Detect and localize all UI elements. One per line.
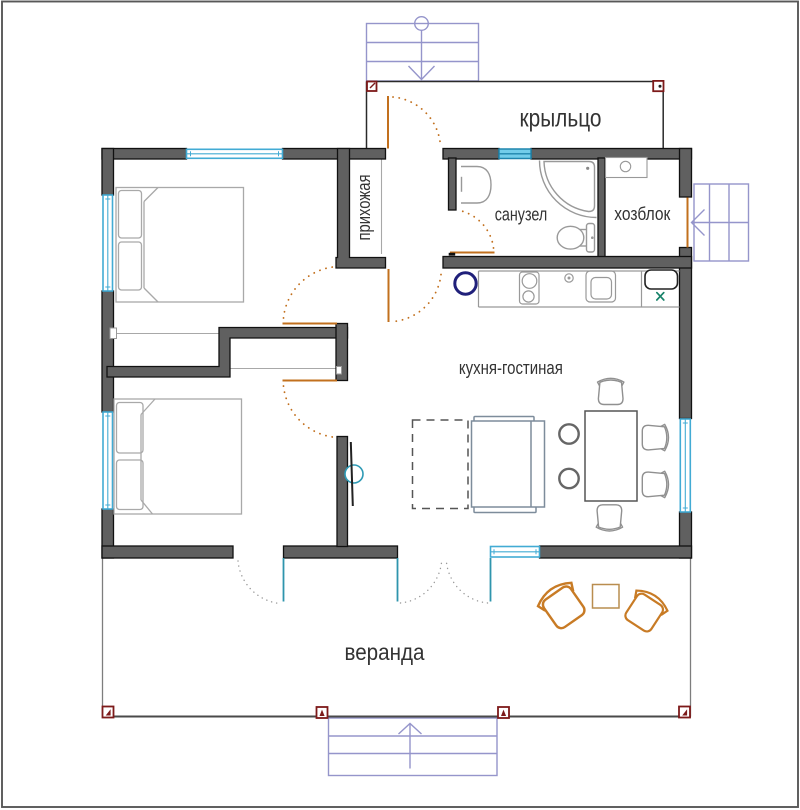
- svg-text:крыльцо: крыльцо: [520, 105, 602, 133]
- svg-text:хозблок: хозблок: [614, 203, 671, 224]
- svg-text:прихожая: прихожая: [353, 175, 374, 241]
- svg-text:санузел: санузел: [495, 203, 548, 224]
- svg-text:веранда: веранда: [345, 639, 426, 665]
- svg-text:кухня-гостиная: кухня-гостиная: [459, 357, 563, 378]
